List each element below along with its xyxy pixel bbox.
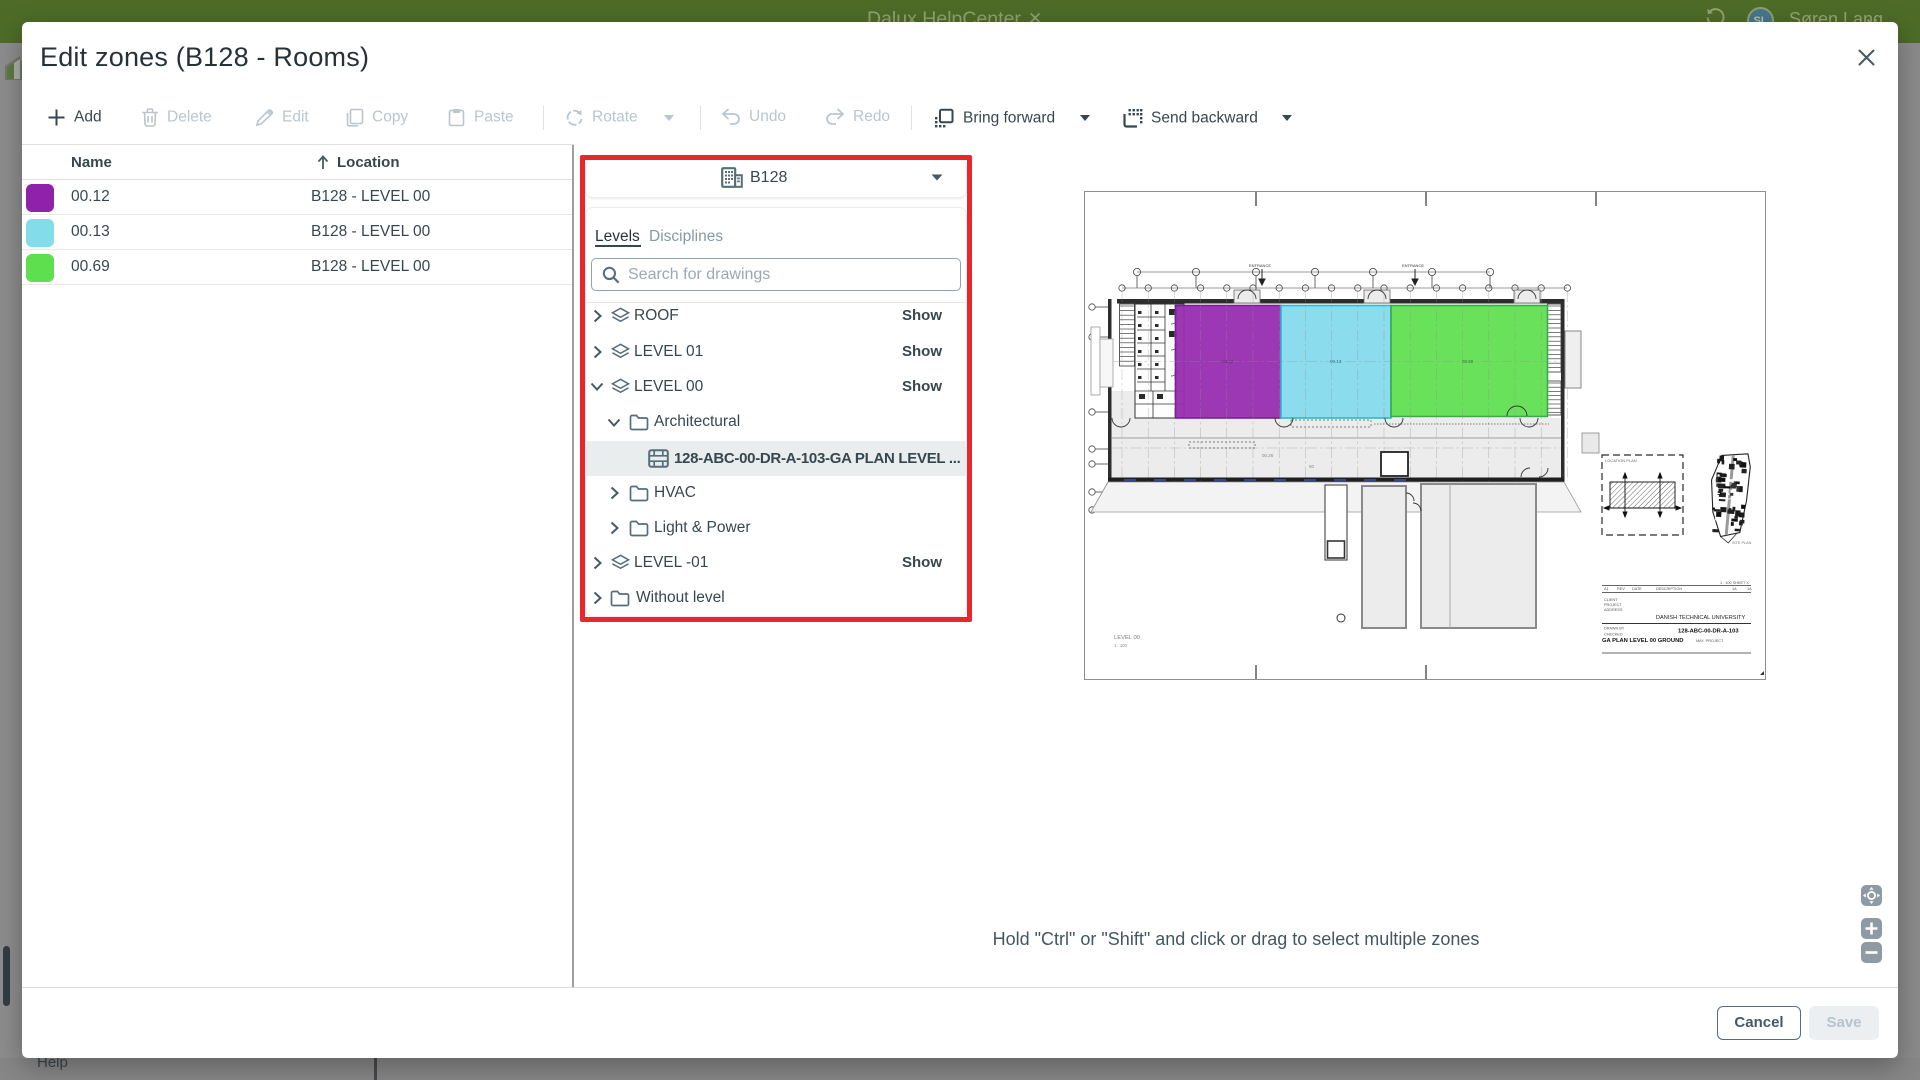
svg-text:DANISH TECHNICAL UNIVERSITY: DANISH TECHNICAL UNIVERSITY (1656, 615, 1745, 621)
svg-text:1 : 100: 1 : 100 (1114, 643, 1127, 648)
svg-text:CHECKED: CHECKED (1604, 633, 1623, 637)
svg-text:MAY, PROJECT: MAY, PROJECT (1696, 639, 1724, 643)
svg-text:128-ABC-00-DR-A-103: 128-ABC-00-DR-A-103 (1678, 629, 1739, 635)
svg-text:1A: 1A (1747, 587, 1752, 591)
svg-text:SITE PLAN: SITE PLAN (1732, 541, 1752, 545)
svg-text:ENTRANCE: ENTRANCE (1402, 263, 1424, 268)
svg-text:LEVEL 00: LEVEL 00 (1114, 635, 1140, 641)
svg-text:PROJECT: PROJECT (1604, 603, 1622, 607)
svg-text:A1: A1 (1604, 587, 1609, 591)
svg-text:1A: 1A (1732, 587, 1737, 591)
svg-text:CLIENT: CLIENT (1604, 598, 1618, 602)
svg-text:50: 50 (1309, 464, 1315, 469)
svg-text:DRAWN BY: DRAWN BY (1604, 627, 1625, 631)
svg-text:ENTRANCE: ENTRANCE (1249, 263, 1271, 268)
svg-text:ADDRESS: ADDRESS (1604, 608, 1623, 612)
svg-text:REV: REV (1617, 587, 1625, 591)
svg-text:GA PLAN LEVEL 00 GROUND: GA PLAN LEVEL 00 GROUND (1602, 638, 1684, 644)
svg-text:DESCRIPTION: DESCRIPTION (1656, 587, 1682, 591)
svg-text:1 : 100 SHEET X: 1 : 100 SHEET X (1720, 581, 1749, 585)
svg-text:LOCATION PLAN: LOCATION PLAN (1605, 458, 1637, 463)
svg-text:DATE: DATE (1632, 587, 1642, 591)
svg-text:00.26: 00.26 (1262, 453, 1274, 458)
